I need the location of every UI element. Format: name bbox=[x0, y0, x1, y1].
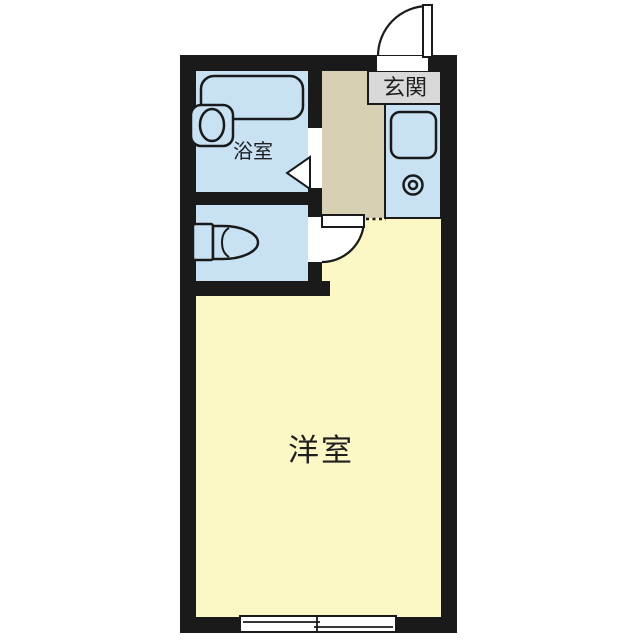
toilet-door-opening bbox=[308, 217, 322, 262]
room-door-leaf bbox=[322, 215, 364, 227]
toilet-tank-icon bbox=[193, 224, 213, 260]
wall-bathroom-toilet bbox=[196, 192, 308, 205]
genkan-label: 玄関 bbox=[383, 76, 427, 101]
wall-toilet-south bbox=[196, 281, 330, 296]
kitchen-sink-icon bbox=[391, 112, 436, 158]
entrance-opening bbox=[377, 56, 428, 71]
entrance-door-leaf bbox=[423, 5, 432, 57]
window-frame bbox=[240, 616, 396, 632]
main-room-label: 洋室 bbox=[288, 433, 354, 469]
bathroom-label: 浴室 bbox=[233, 139, 273, 163]
entrance-door-swing bbox=[378, 6, 428, 56]
floor-plan-page: 浴室 玄関 洋室 bbox=[0, 0, 640, 640]
washbasin-bowl-icon bbox=[200, 109, 224, 141]
floor-plan: 浴室 玄関 洋室 bbox=[0, 0, 640, 640]
